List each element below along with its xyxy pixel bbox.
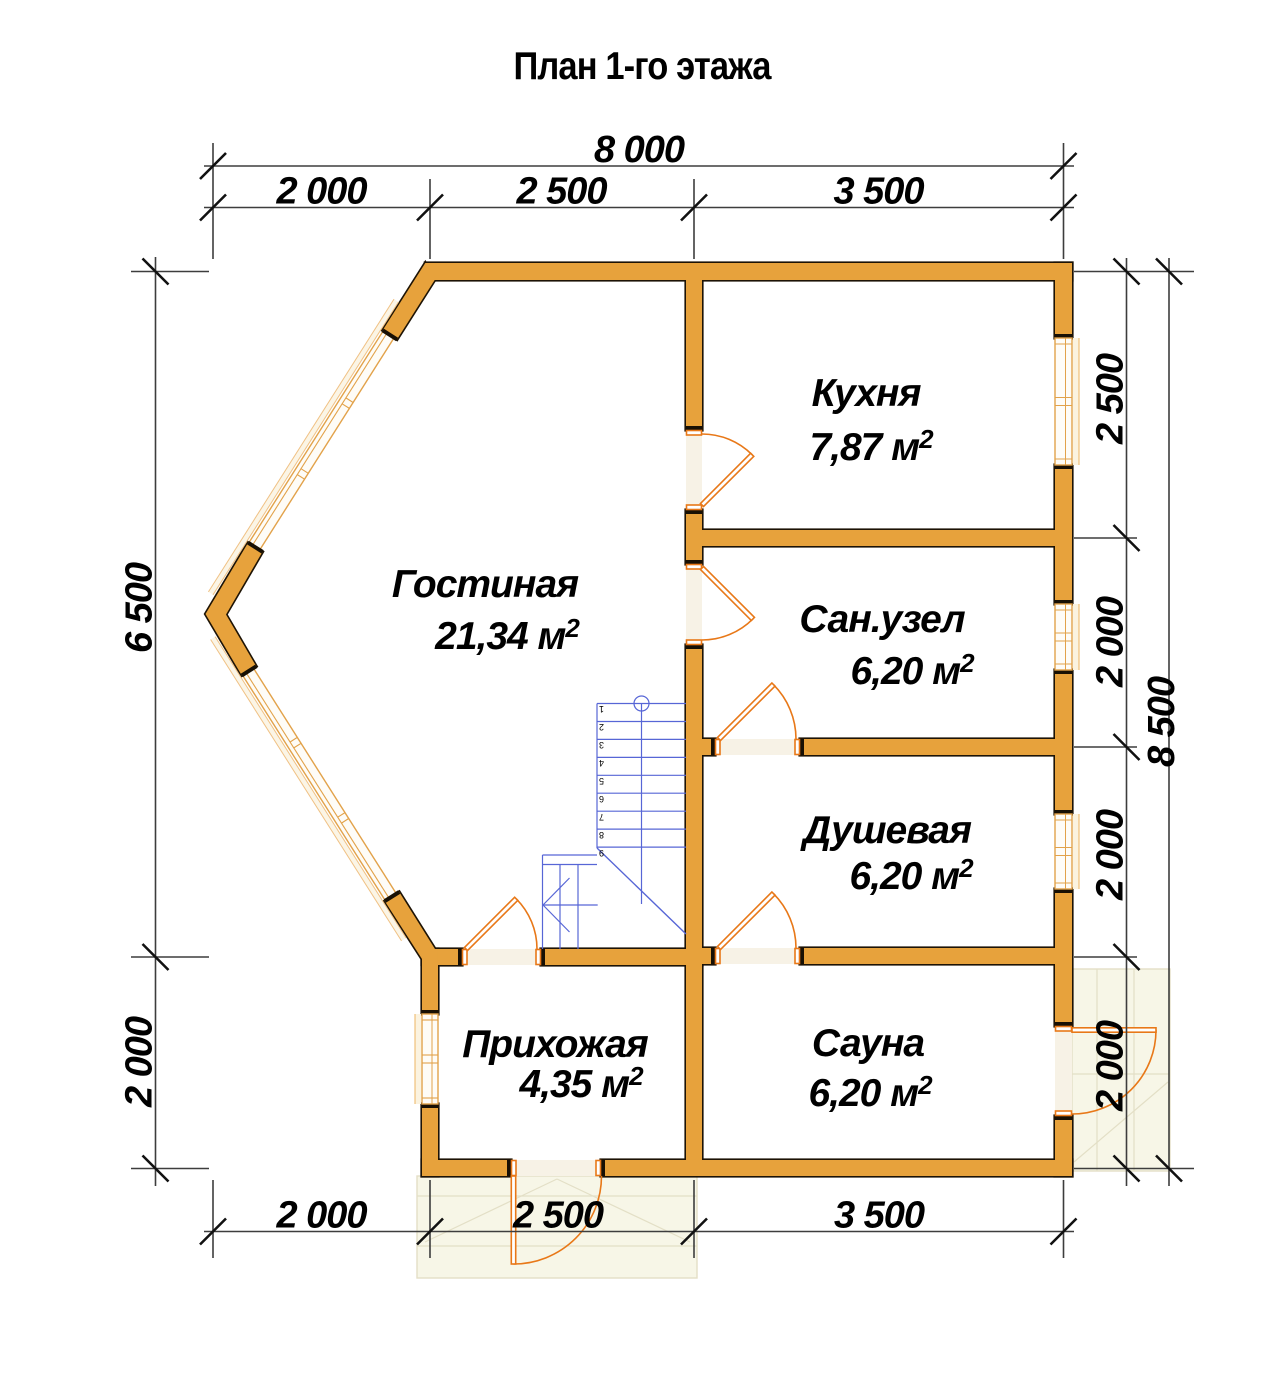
svg-text:3 500: 3 500 xyxy=(834,1195,925,1237)
svg-text:2 000: 2 000 xyxy=(119,1016,161,1108)
svg-text:3 500: 3 500 xyxy=(833,171,924,213)
svg-text:6,20 м2: 6,20 м2 xyxy=(850,648,975,693)
svg-text:4,35 м2: 4,35 м2 xyxy=(518,1061,644,1106)
svg-text:6 500: 6 500 xyxy=(119,562,161,653)
svg-text:2 000: 2 000 xyxy=(1090,596,1132,688)
svg-text:2: 2 xyxy=(599,722,604,732)
svg-text:План 1-го этажа: План 1-го этажа xyxy=(514,45,772,88)
svg-text:5: 5 xyxy=(599,776,604,786)
svg-text:Душевая: Душевая xyxy=(800,809,972,852)
svg-text:3: 3 xyxy=(599,740,604,750)
svg-text:21,34 м2: 21,34 м2 xyxy=(434,613,580,658)
svg-text:2 000: 2 000 xyxy=(275,171,367,213)
svg-text:6,20 м2: 6,20 м2 xyxy=(849,853,974,898)
svg-text:9: 9 xyxy=(599,848,604,858)
svg-text:Сан.узел: Сан.узел xyxy=(799,598,965,641)
svg-text:2 500: 2 500 xyxy=(515,171,607,213)
svg-text:6,20 м2: 6,20 м2 xyxy=(808,1070,933,1115)
svg-text:Гостиная: Гостиная xyxy=(392,563,579,606)
svg-text:2 500: 2 500 xyxy=(1090,353,1132,445)
svg-text:8: 8 xyxy=(599,830,604,840)
svg-text:1: 1 xyxy=(599,704,604,714)
svg-text:7,87 м2: 7,87 м2 xyxy=(809,424,934,469)
svg-text:8 000: 8 000 xyxy=(594,129,685,171)
svg-text:2 000: 2 000 xyxy=(1090,809,1132,901)
svg-text:8 500: 8 500 xyxy=(1141,676,1183,767)
svg-text:Прихожая: Прихожая xyxy=(462,1023,649,1066)
svg-text:7: 7 xyxy=(599,812,604,822)
svg-text:Сауна: Сауна xyxy=(812,1022,925,1065)
svg-text:4: 4 xyxy=(599,758,604,768)
svg-text:2 500: 2 500 xyxy=(512,1195,604,1237)
svg-text:2 000: 2 000 xyxy=(275,1195,367,1237)
svg-text:2 000: 2 000 xyxy=(1090,1020,1132,1112)
svg-text:Кухня: Кухня xyxy=(812,372,922,415)
svg-text:6: 6 xyxy=(599,794,604,804)
